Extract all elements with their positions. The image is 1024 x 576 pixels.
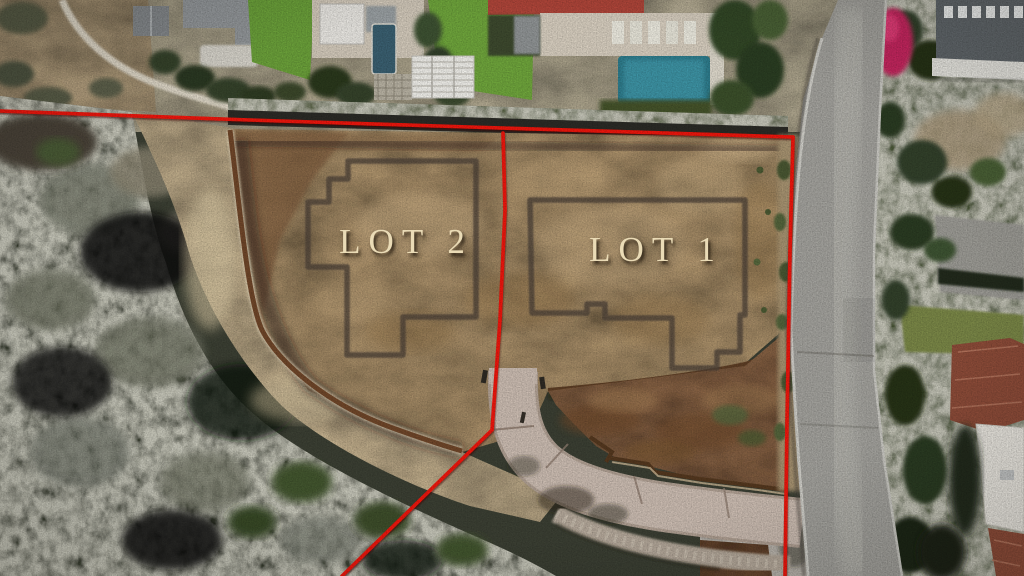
lot2-label: LOT 2: [339, 222, 473, 262]
vignette: [0, 0, 1024, 576]
aerial-photo-canvas: [0, 0, 1024, 576]
lot1-label: LOT 1: [589, 230, 723, 270]
aerial-site-photo: LOT 2 LOT 1: [0, 0, 1024, 576]
